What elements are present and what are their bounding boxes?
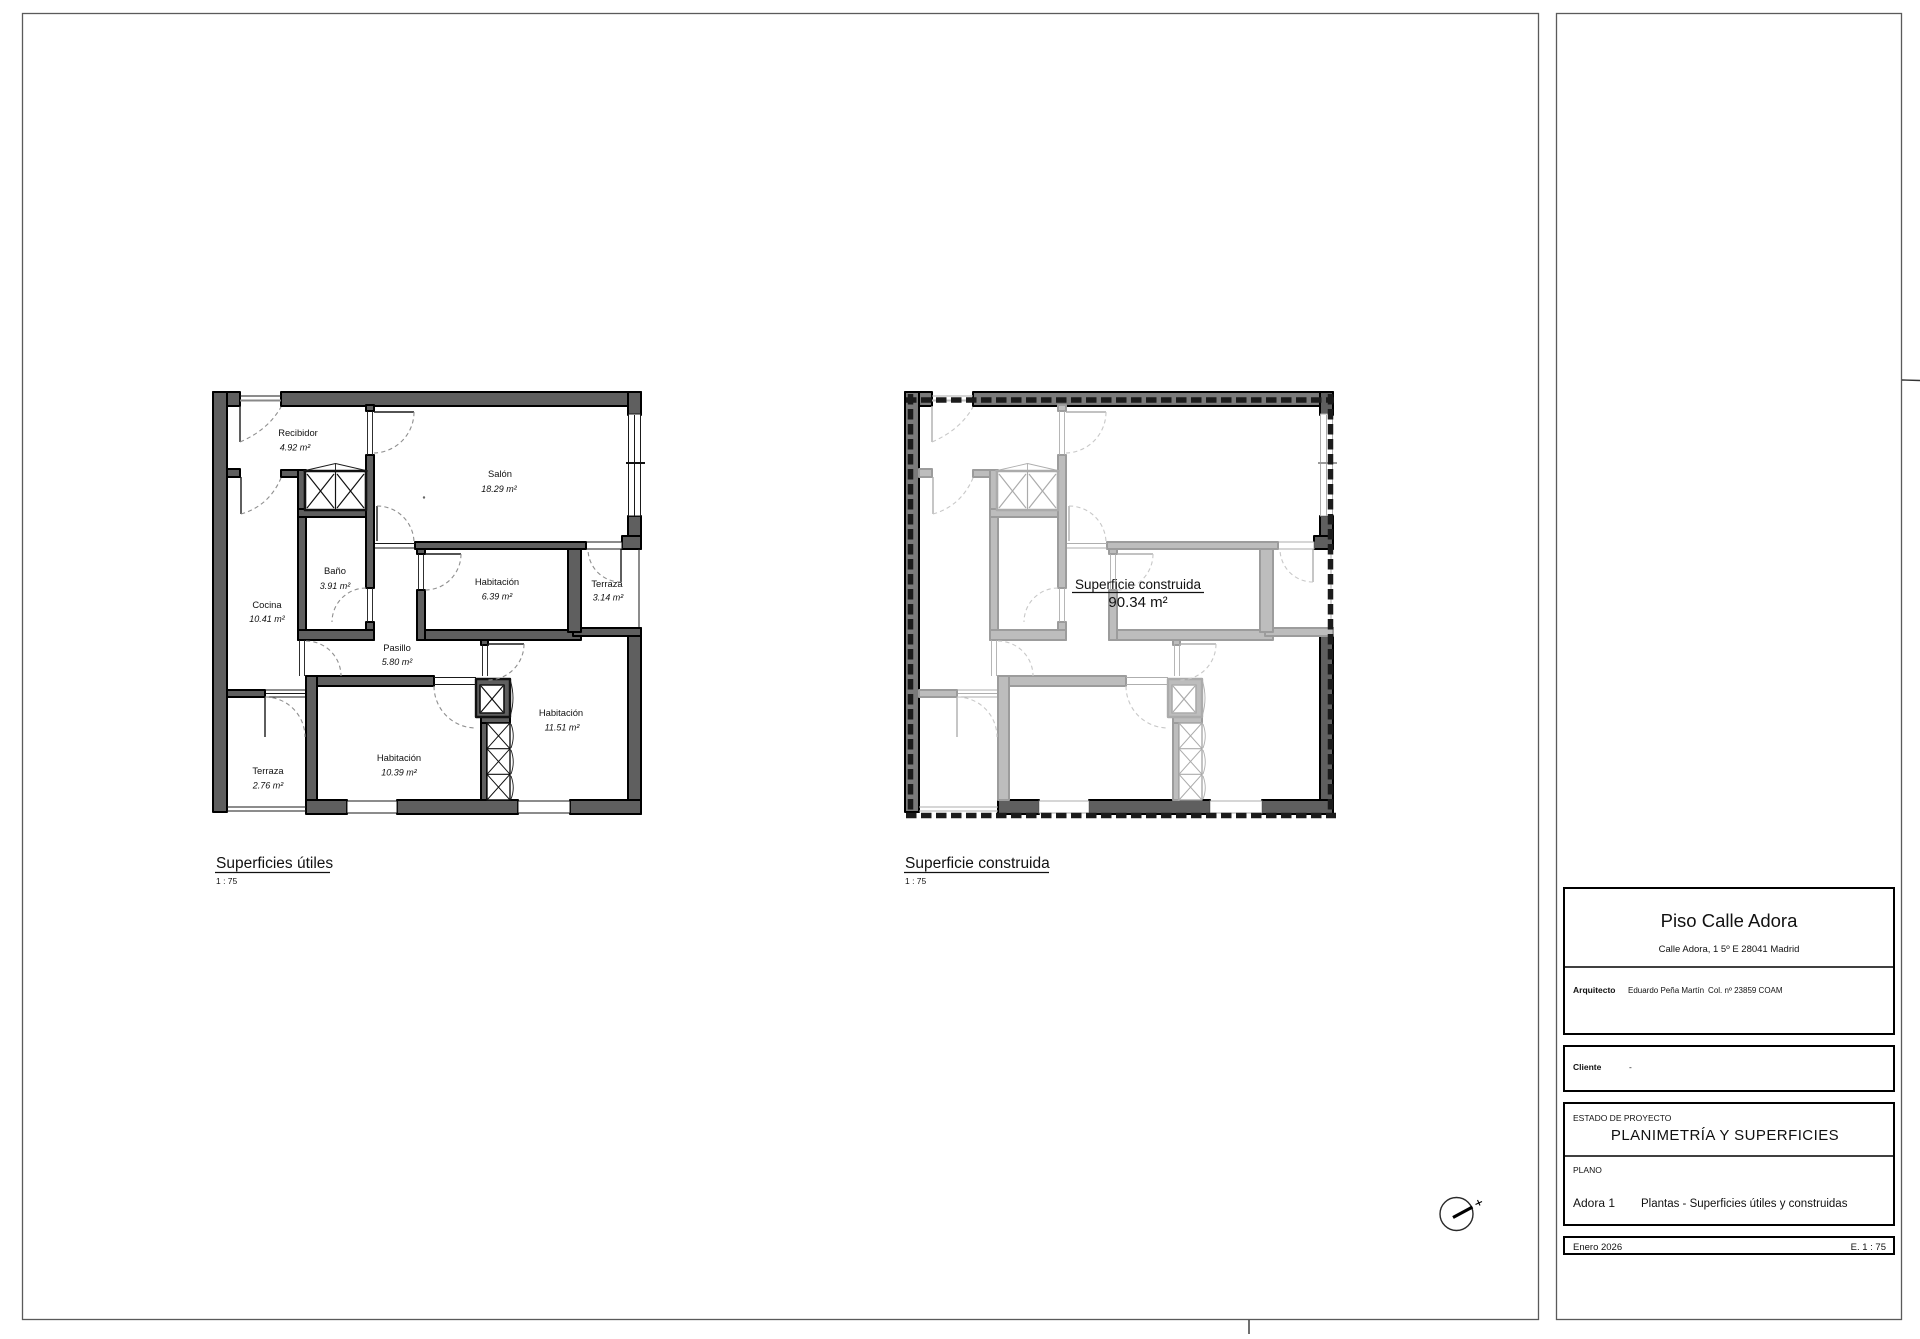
svg-text:3.91 m²: 3.91 m² xyxy=(320,581,352,591)
svg-text:4.92 m²: 4.92 m² xyxy=(280,443,312,453)
svg-text:E. 1 : 75: E. 1 : 75 xyxy=(1851,1242,1886,1253)
svg-text:-: - xyxy=(1629,1062,1632,1072)
svg-text:18.29 m²: 18.29 m² xyxy=(481,484,518,494)
svg-text:Eduardo Peña Martín Col. nº 23: Eduardo Peña Martín Col. nº 23859 COAM xyxy=(1628,986,1783,995)
svg-text:Pasillo: Pasillo xyxy=(383,642,411,653)
svg-text:1 : 75: 1 : 75 xyxy=(216,876,238,886)
svg-text:10.39 m²: 10.39 m² xyxy=(381,768,418,778)
svg-text:Terraza: Terraza xyxy=(591,578,623,589)
svg-text:Superficies útiles: Superficies útiles xyxy=(216,855,333,872)
svg-text:Cocina: Cocina xyxy=(252,599,282,610)
svg-text:Plantas - Superficies útiles y: Plantas - Superficies útiles y construid… xyxy=(1641,1198,1848,1210)
svg-text:Habitación: Habitación xyxy=(475,576,519,587)
svg-text:11.51 m²: 11.51 m² xyxy=(545,723,581,733)
svg-text:Baño: Baño xyxy=(324,565,346,576)
svg-text:Habitación: Habitación xyxy=(377,752,421,763)
svg-text:Cliente: Cliente xyxy=(1573,1062,1602,1072)
svg-text:5.80 m²: 5.80 m² xyxy=(382,657,414,667)
svg-text:Salón: Salón xyxy=(488,468,512,479)
svg-text:Enero 2026: Enero 2026 xyxy=(1573,1242,1622,1253)
svg-text:Superficie construida: Superficie construida xyxy=(1075,577,1202,592)
svg-text:2.76 m²: 2.76 m² xyxy=(252,781,285,791)
svg-text:Superficie construida: Superficie construida xyxy=(905,855,1050,872)
svg-text:10.41 m²: 10.41 m² xyxy=(249,614,286,624)
svg-text:Piso Calle Adora: Piso Calle Adora xyxy=(1661,910,1798,931)
svg-text:Habitación: Habitación xyxy=(539,707,583,718)
svg-text:Terraza: Terraza xyxy=(252,765,284,776)
svg-text:Recibidor: Recibidor xyxy=(278,427,318,438)
svg-text:90.34 m²: 90.34 m² xyxy=(1108,594,1167,611)
svg-text:Arquitecto: Arquitecto xyxy=(1573,985,1616,995)
svg-text:1 : 75: 1 : 75 xyxy=(905,876,927,886)
svg-text:PLANO: PLANO xyxy=(1573,1165,1602,1175)
svg-text:Adora 1: Adora 1 xyxy=(1573,1196,1615,1210)
svg-text:3.14 m²: 3.14 m² xyxy=(593,593,625,603)
svg-text:6.39 m²: 6.39 m² xyxy=(482,592,514,602)
svg-text:Calle Adora, 1 5º E 28041 Madr: Calle Adora, 1 5º E 28041 Madrid xyxy=(1659,944,1800,955)
svg-text:PLANIMETRÍA Y SUPERFICIES: PLANIMETRÍA Y SUPERFICIES xyxy=(1611,1127,1839,1144)
svg-text:ESTADO DE PROYECTO: ESTADO DE PROYECTO xyxy=(1573,1113,1672,1123)
